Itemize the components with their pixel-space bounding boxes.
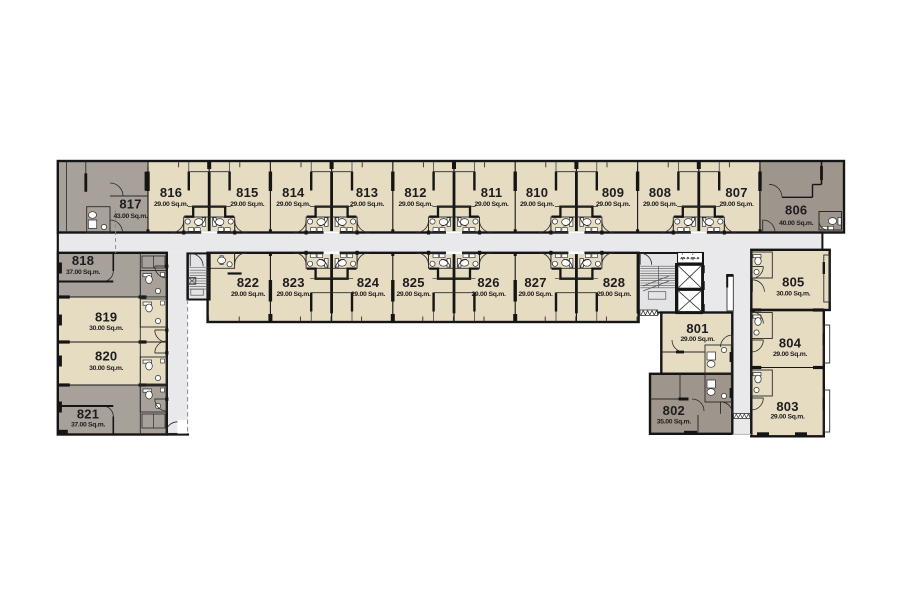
- svg-text:29.00 Sq.m.: 29.00 Sq.m.: [396, 291, 431, 298]
- svg-text:37.00 Sq.m.: 37.00 Sq.m.: [66, 269, 101, 276]
- svg-text:29.00 Sq.m.: 29.00 Sq.m.: [276, 291, 311, 298]
- svg-text:807: 807: [725, 185, 747, 200]
- svg-text:30.00 Sq.m.: 30.00 Sq.m.: [89, 325, 124, 332]
- svg-text:813: 813: [356, 185, 378, 200]
- svg-text:826: 826: [477, 275, 499, 290]
- svg-text:804: 804: [779, 335, 802, 350]
- svg-text:806: 806: [785, 202, 807, 217]
- svg-text:812: 812: [404, 185, 426, 200]
- svg-text:824: 824: [357, 275, 380, 290]
- svg-text:29.00 Sq.m.: 29.00 Sq.m.: [351, 291, 386, 298]
- svg-text:828: 828: [603, 275, 625, 290]
- svg-text:29.00 Sq.m.: 29.00 Sq.m.: [474, 201, 509, 208]
- svg-text:811: 811: [481, 185, 503, 200]
- svg-text:823: 823: [282, 275, 304, 290]
- svg-text:29.00 Sq.m.: 29.00 Sq.m.: [350, 201, 385, 208]
- svg-text:29.00 Sq.m.: 29.00 Sq.m.: [770, 414, 805, 421]
- svg-text:29.00 Sq.m.: 29.00 Sq.m.: [276, 201, 311, 208]
- svg-text:29.00 Sq.m.: 29.00 Sq.m.: [231, 291, 266, 298]
- svg-text:817: 817: [119, 197, 141, 212]
- svg-text:29.00 Sq.m.: 29.00 Sq.m.: [230, 201, 265, 208]
- svg-text:816: 816: [160, 185, 182, 200]
- svg-text:29.00 Sq.m.: 29.00 Sq.m.: [719, 201, 754, 208]
- svg-text:820: 820: [95, 349, 117, 364]
- svg-text:827: 827: [524, 275, 546, 290]
- svg-text:43.00 Sq.m.: 43.00 Sq.m.: [113, 213, 148, 220]
- svg-text:815: 815: [236, 185, 258, 200]
- svg-text:29.00 Sq.m.: 29.00 Sq.m.: [597, 291, 632, 298]
- svg-text:814: 814: [282, 185, 305, 200]
- svg-text:29.00 Sq.m.: 29.00 Sq.m.: [154, 201, 189, 208]
- svg-text:29.00 Sq.m.: 29.00 Sq.m.: [518, 291, 553, 298]
- svg-text:808: 808: [649, 185, 671, 200]
- svg-text:29.00 Sq.m.: 29.00 Sq.m.: [596, 201, 631, 208]
- svg-text:801: 801: [686, 321, 708, 336]
- svg-text:40.00 Sq.m.: 40.00 Sq.m.: [779, 220, 814, 227]
- svg-text:37.00 Sq.m.: 37.00 Sq.m.: [71, 422, 106, 429]
- svg-text:810: 810: [526, 185, 548, 200]
- svg-text:29.00 Sq.m.: 29.00 Sq.m.: [471, 291, 506, 298]
- svg-text:30.00 Sq.m.: 30.00 Sq.m.: [89, 365, 124, 372]
- svg-text:29.00 Sq.m.: 29.00 Sq.m.: [398, 201, 433, 208]
- svg-text:30.00 Sq.m.: 30.00 Sq.m.: [776, 290, 811, 297]
- svg-text:35.00 Sq.m.: 35.00 Sq.m.: [657, 419, 692, 426]
- svg-text:29.00 Sq.m.: 29.00 Sq.m.: [773, 351, 808, 358]
- svg-text:803: 803: [776, 399, 798, 414]
- svg-text:802: 802: [663, 403, 685, 418]
- svg-text:825: 825: [402, 275, 424, 290]
- svg-text:818: 818: [72, 253, 94, 268]
- svg-text:29.00 Sq.m.: 29.00 Sq.m.: [643, 201, 678, 208]
- svg-text:29.00 Sq.m.: 29.00 Sq.m.: [520, 201, 555, 208]
- svg-text:809: 809: [602, 185, 624, 200]
- svg-text:822: 822: [237, 275, 259, 290]
- svg-text:29.00 Sq.m.: 29.00 Sq.m.: [680, 336, 715, 343]
- svg-text:805: 805: [782, 275, 804, 290]
- svg-text:821: 821: [77, 407, 99, 422]
- svg-text:819: 819: [95, 310, 117, 325]
